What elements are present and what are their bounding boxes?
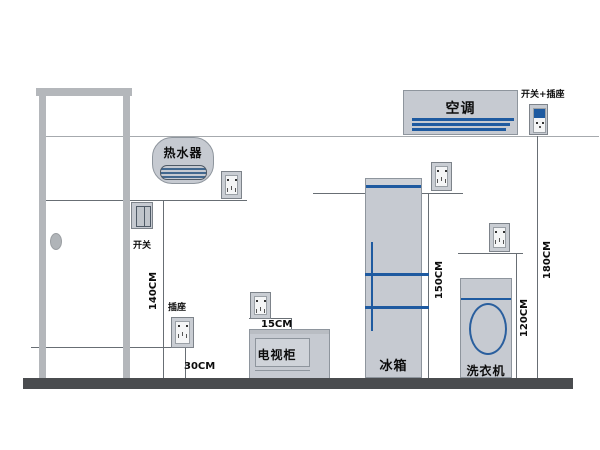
tv-cabinet-drawer-line — [255, 370, 310, 371]
fridge-label: 冰箱 — [366, 355, 421, 374]
water-heater-element — [160, 165, 207, 180]
wiring-height-diagram: 热水器 开关 140CM 插座 30CM 15CM 电视柜 冰箱 150CM 空… — [0, 0, 600, 450]
washer-drum — [469, 303, 507, 355]
fridge-shelf-line-1 — [365, 273, 429, 276]
washing-machine: 洗衣机 — [460, 278, 512, 378]
water-heater-socket-icon — [221, 171, 242, 199]
tv-cabinet-top-edge — [250, 330, 329, 334]
washer-panel-line — [461, 298, 511, 300]
water-heater-label: 热水器 — [153, 144, 213, 161]
ac-vent-stripe-1 — [412, 118, 514, 121]
measure-line-120cm — [516, 253, 517, 378]
washer-socket-icon — [489, 223, 510, 252]
dim-140cm: 140CM — [148, 269, 160, 313]
tv-cabinet-label: 电视柜 — [242, 346, 312, 363]
light-switch-icon — [131, 202, 153, 229]
dim-120cm: 120CM — [519, 296, 531, 340]
socket-label: 插座 — [168, 300, 186, 313]
ac-vent-stripe-3 — [412, 128, 506, 131]
water-heater-socket-line — [39, 200, 247, 201]
low-socket-line — [31, 347, 193, 348]
door-right-jamb — [123, 96, 130, 378]
washing-machine-label: 洗衣机 — [461, 362, 511, 379]
tv-cabinet: 电视柜 — [249, 329, 330, 379]
ac-switch-socket-icon — [529, 104, 548, 135]
low-socket-icon — [171, 317, 194, 348]
air-conditioner-label: 空调 — [404, 98, 517, 118]
door-knob — [50, 233, 62, 250]
dim-180cm: 180CM — [542, 238, 554, 282]
measure-line-150cm — [428, 193, 429, 378]
door-left-jamb — [39, 96, 46, 378]
dim-150cm: 150CM — [434, 258, 446, 302]
washer-socket-line — [458, 253, 523, 254]
fridge-socket-icon — [431, 162, 452, 191]
water-heater: 热水器 — [152, 137, 214, 184]
air-conditioner: 空调 — [403, 90, 518, 135]
fridge-shelf-line-2 — [365, 306, 429, 309]
tv-socket-icon — [250, 292, 271, 319]
fridge-top-blue-line — [366, 185, 421, 188]
dim-30cm: 30CM — [184, 361, 215, 372]
fridge-vertical-line — [371, 242, 373, 331]
measure-line-180cm — [537, 136, 538, 378]
switch-label: 开关 — [133, 238, 151, 251]
floor — [23, 378, 573, 389]
door-lintel — [36, 88, 132, 96]
fridge: 冰箱 — [365, 178, 422, 378]
ac-vent-stripe-2 — [412, 123, 510, 126]
switch-plus-socket-label: 开关+插座 — [521, 87, 565, 100]
measure-line-140cm — [163, 200, 164, 378]
